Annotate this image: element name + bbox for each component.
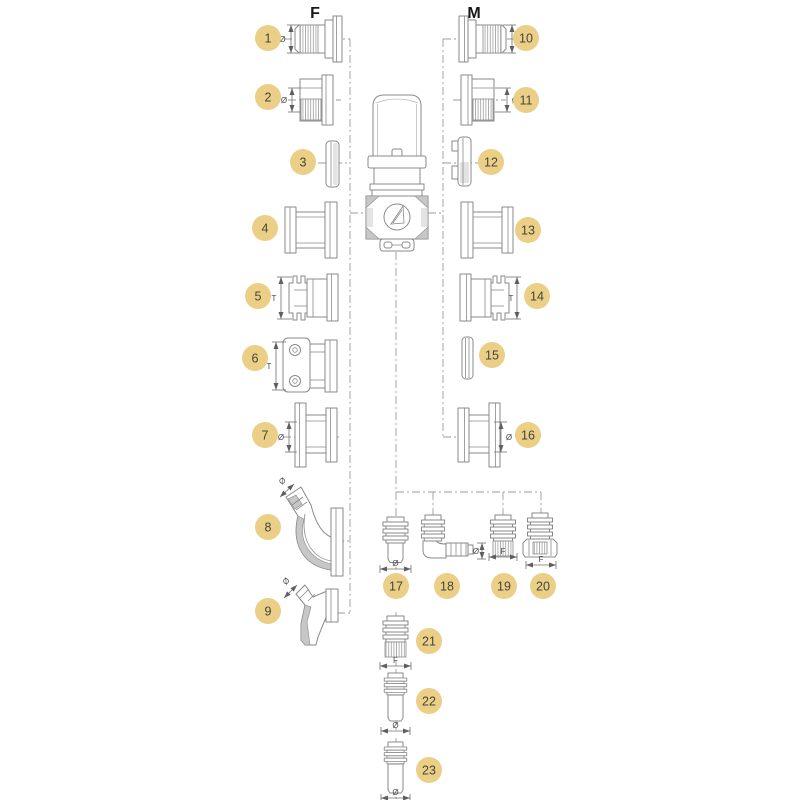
dim-label-part-18: Ø (473, 547, 479, 556)
part-badge-14: 14 (524, 283, 550, 309)
dim-label-part-21: F (393, 656, 398, 665)
part-14-drawing (460, 274, 509, 321)
dim-label-part-14: T (509, 294, 514, 303)
dim-label-part-22: Ø (392, 721, 398, 730)
part-10-drawing (459, 16, 506, 62)
part-badge-5: 5 (245, 283, 271, 309)
svg-text:1: 1 (265, 31, 272, 45)
part-20-drawing (523, 513, 557, 557)
part-badge-19: 19 (491, 573, 517, 599)
svg-text:8: 8 (265, 520, 272, 534)
part-3-drawing (326, 141, 339, 187)
svg-text:17: 17 (389, 579, 403, 593)
part-4-drawing (285, 202, 337, 258)
dim-part-23: Ø (381, 788, 410, 800)
dim-label-part-23: Ø (392, 788, 398, 797)
part-7-drawing (295, 403, 337, 467)
column-header-male: M (467, 5, 480, 22)
dim-label-part-8: Ø (277, 476, 288, 487)
part-badge-10: 10 (513, 25, 539, 51)
part-badge-3: 3 (290, 149, 316, 175)
part-badge-4: 4 (252, 215, 278, 241)
dim-part-21: F (380, 656, 411, 670)
part-badge-2: 2 (255, 84, 281, 110)
part-badge-15: 15 (479, 342, 505, 368)
svg-text:18: 18 (440, 579, 454, 593)
svg-text:7: 7 (262, 428, 269, 442)
svg-text:11: 11 (520, 93, 533, 107)
column-header-female: F (310, 5, 320, 22)
part-22-drawing (384, 673, 407, 721)
svg-text:4: 4 (262, 221, 269, 235)
dim-label-part-9: Ø (281, 576, 292, 587)
dim-label-part-6: T (267, 362, 272, 371)
dim-label-part-5: T (272, 294, 277, 303)
part-badge-11: 11 (513, 87, 539, 113)
part-6-drawing (283, 338, 337, 392)
part-badge-6: 6 (242, 345, 268, 371)
dim-label-part-17: Ø (392, 559, 398, 568)
part-18-drawing (422, 515, 474, 558)
diagram-canvas: F M (0, 0, 800, 800)
svg-text:9: 9 (265, 604, 272, 618)
valve-body-drawing (366, 95, 428, 251)
dim-part-22: Ø (381, 721, 410, 735)
svg-text:3: 3 (300, 155, 307, 169)
part-badge-23: 23 (416, 757, 442, 783)
part-13-drawing (461, 202, 513, 258)
part-badge-7: 7 (252, 422, 278, 448)
part-badge-16: 16 (515, 422, 541, 448)
part-17-drawing (383, 517, 408, 563)
svg-text:12: 12 (484, 155, 498, 169)
part-badge-8: 8 (255, 514, 281, 540)
part-badge-18: 18 (434, 573, 460, 599)
part-badge-17: 17 (383, 573, 409, 599)
svg-text:5: 5 (255, 289, 262, 303)
part-badge-21: 21 (416, 628, 442, 654)
dim-label-part-7: Ø (278, 433, 284, 442)
svg-text:22: 22 (422, 694, 436, 708)
part-9-drawing (296, 585, 338, 645)
part-2-drawing (300, 75, 333, 125)
svg-text:6: 6 (252, 351, 259, 365)
dim-part-17: Ø (380, 559, 411, 573)
part-23-drawing (384, 742, 407, 793)
dim-part-18: Ø (473, 543, 486, 559)
svg-text:14: 14 (530, 289, 544, 303)
dim-part-9: Ø (281, 576, 297, 598)
svg-text:10: 10 (519, 31, 533, 45)
part-1-drawing (295, 16, 342, 62)
svg-text:15: 15 (485, 348, 499, 362)
dim-label-part-16: Ø (506, 433, 512, 442)
part-21-drawing (383, 616, 408, 657)
svg-text:21: 21 (422, 634, 436, 648)
part-badge-9: 9 (255, 598, 281, 624)
parts-diagram: F M (0, 0, 800, 800)
part-12-drawing (452, 137, 471, 186)
svg-text:2: 2 (265, 90, 272, 104)
svg-text:13: 13 (521, 223, 535, 237)
part-badge-20: 20 (530, 573, 556, 599)
part-8-drawing (286, 487, 343, 576)
part-16-drawing (458, 403, 500, 467)
part-badge-22: 22 (416, 688, 442, 714)
part-11-drawing (461, 75, 494, 125)
part-5-drawing (289, 274, 338, 321)
svg-text:19: 19 (497, 579, 511, 593)
part-15-drawing (462, 337, 473, 379)
svg-text:20: 20 (536, 579, 550, 593)
dim-label-part-20: F (539, 555, 544, 564)
part-badge-1: 1 (255, 25, 281, 51)
dim-label-part-19: F (501, 547, 506, 556)
dim-label-part-2: Ø (281, 96, 287, 105)
svg-text:16: 16 (521, 428, 535, 442)
svg-text:23: 23 (422, 763, 436, 777)
part-badge-13: 13 (515, 217, 541, 243)
part-badge-12: 12 (478, 149, 504, 175)
